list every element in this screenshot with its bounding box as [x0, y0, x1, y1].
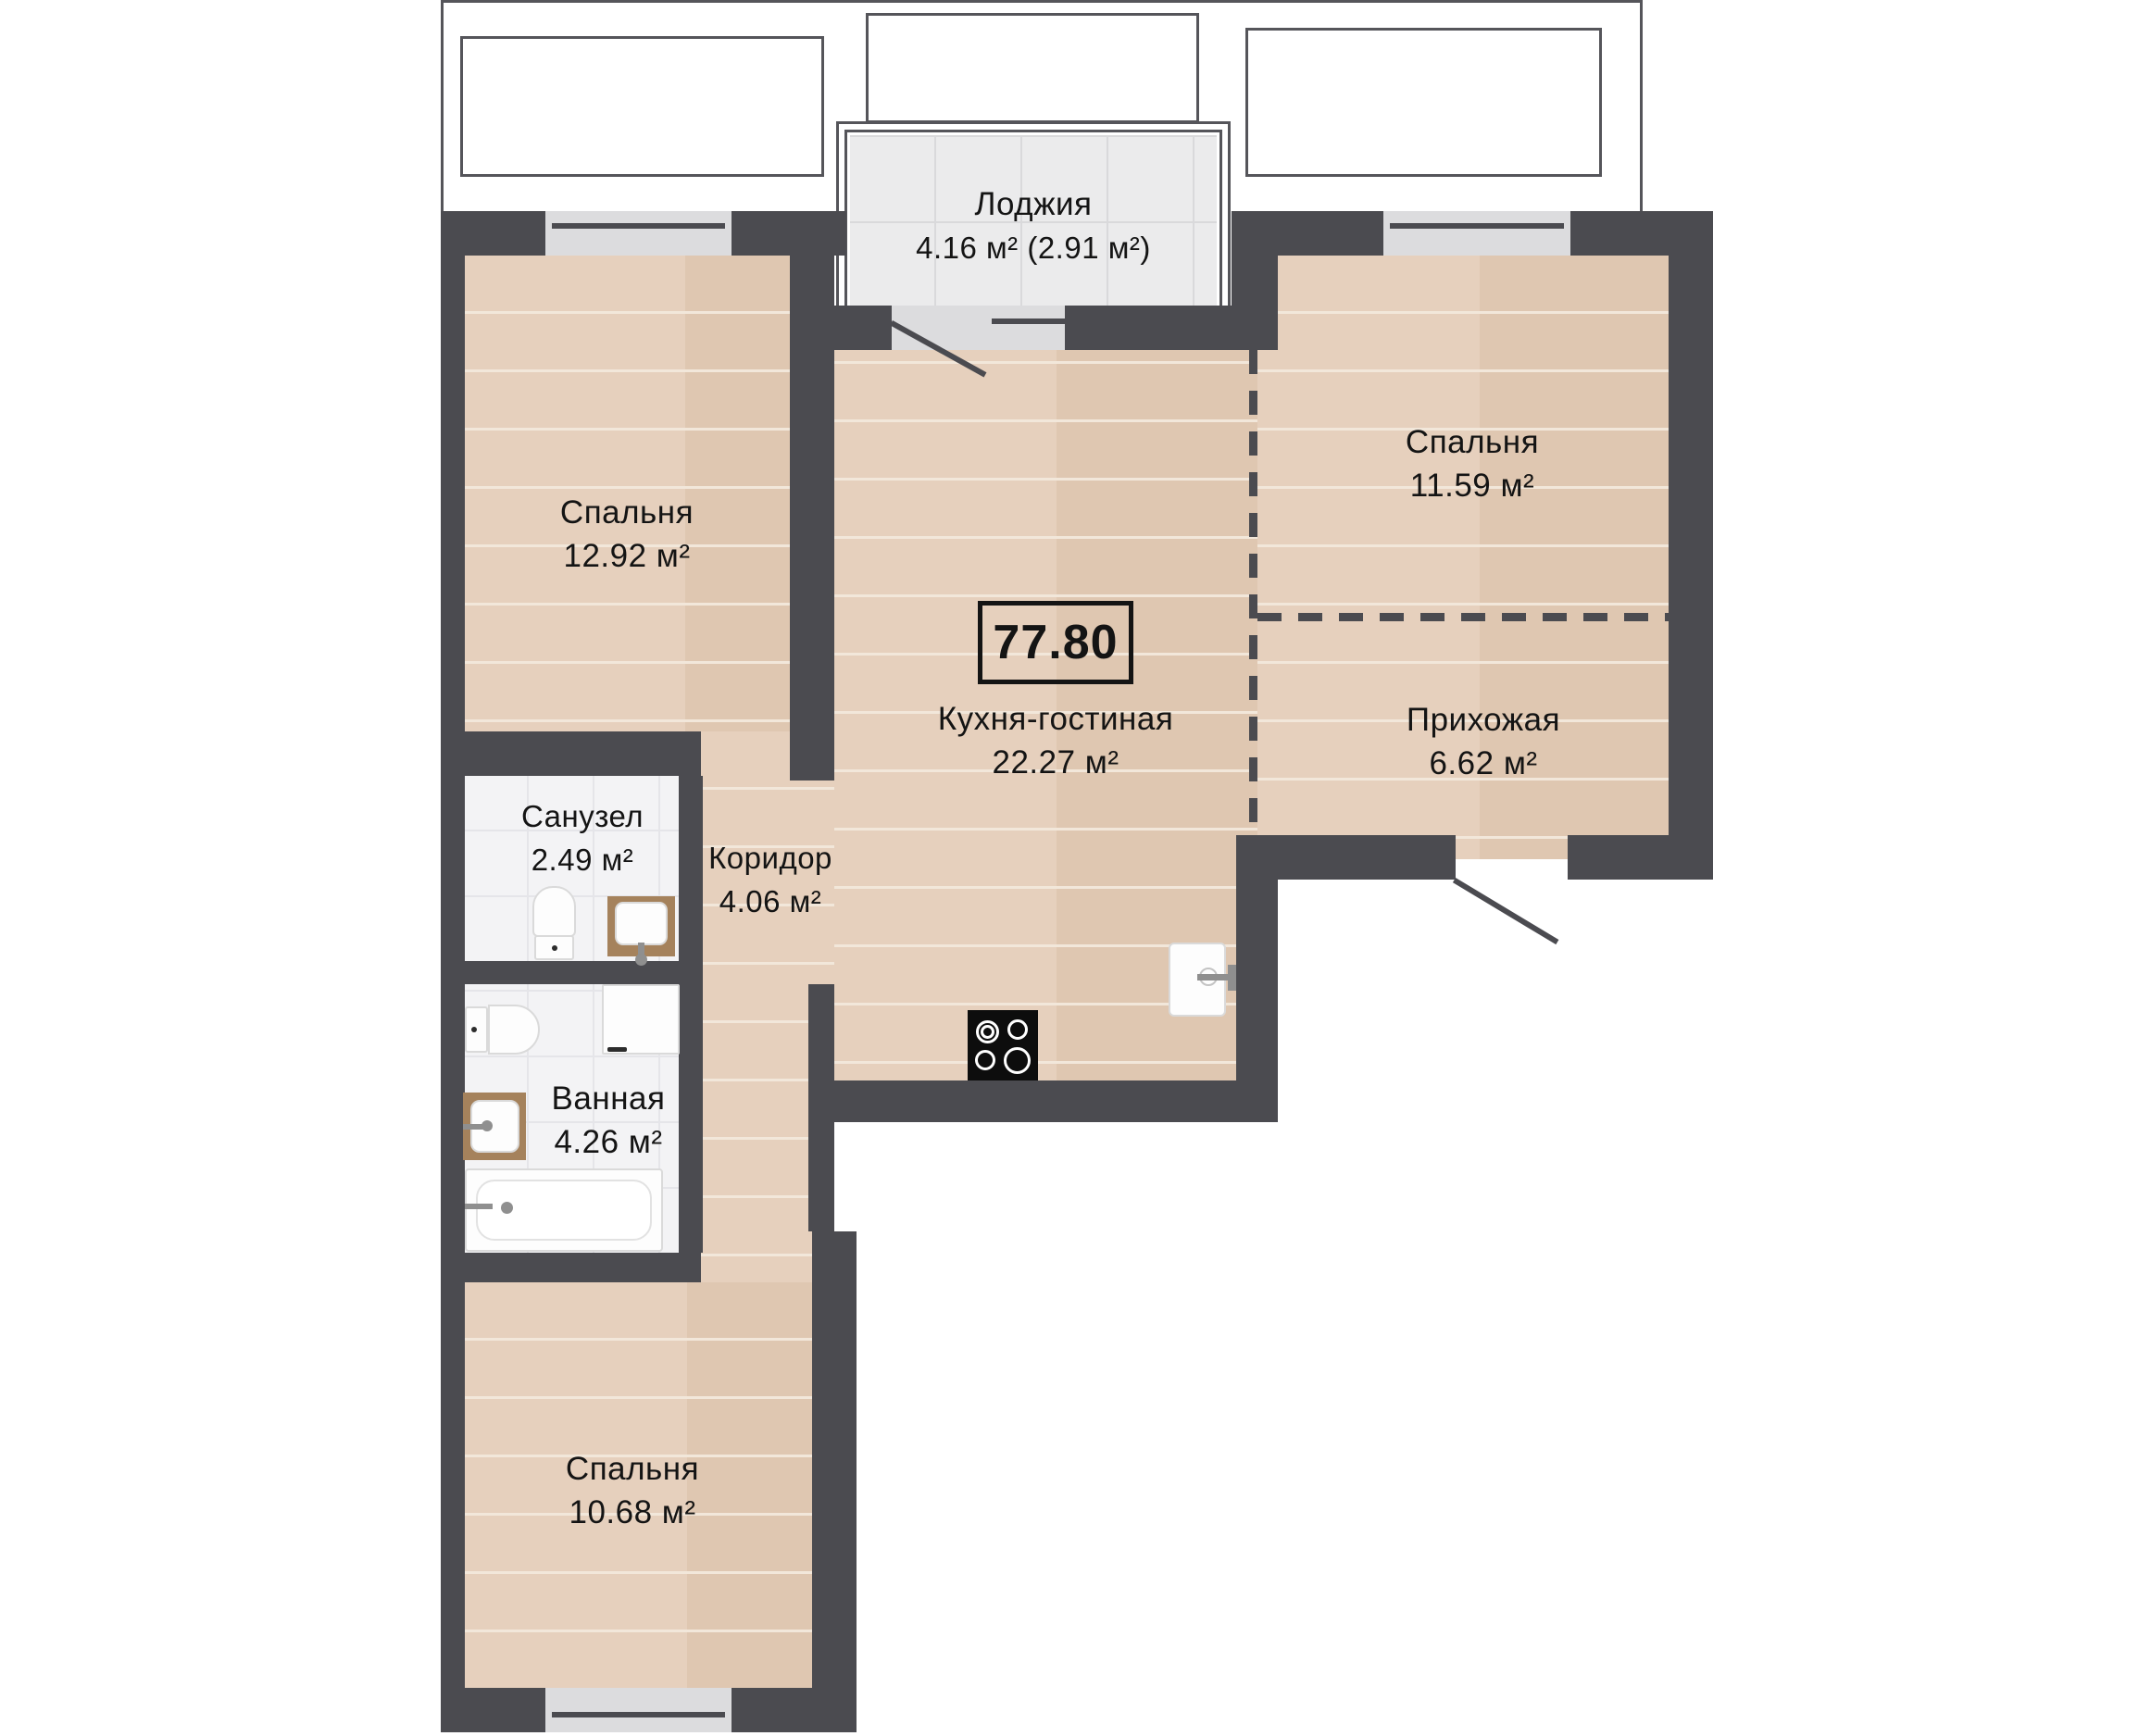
wall — [1568, 835, 1713, 880]
balcony-door-opening — [892, 306, 1065, 350]
bathroom-faucet-knob-icon — [481, 1120, 493, 1131]
wall — [790, 211, 834, 781]
room-label-bathroom: Ванная 4.26 м² — [552, 1077, 666, 1164]
room-name: Санузел — [521, 794, 644, 838]
outer-contour-right-line — [1640, 0, 1643, 211]
room-name: Кухня-гостиная — [938, 697, 1174, 741]
room-name: Ванная — [552, 1077, 666, 1120]
room-area: 2.49 м² — [521, 838, 644, 881]
room-label-hallway: Прихожая 6.62 м² — [1407, 698, 1560, 785]
window-glass-line — [552, 1712, 725, 1717]
wall — [808, 984, 834, 1231]
wall — [463, 961, 681, 984]
room-label-bedroom-bottom: Спальня 10.68 м² — [566, 1447, 699, 1534]
adjacent-balcony-outline-middle — [866, 13, 1199, 123]
window-glass-line — [552, 223, 725, 229]
floor-plan: Лоджия 4.16 м² (2.91 м²) Спальня 12.92 м… — [0, 0, 2151, 1736]
room-area: 11.59 м² — [1406, 464, 1539, 507]
room-area: 22.27 м² — [938, 741, 1174, 784]
room-name: Прихожая — [1407, 698, 1560, 742]
stove-icon — [968, 1010, 1038, 1080]
room-label-bedroom-top-right: Спальня 11.59 м² — [1406, 420, 1539, 507]
room-area: 4.06 м² — [708, 880, 832, 923]
room-label-wc: Санузел 2.49 м² — [521, 794, 644, 881]
room-area: 6.62 м² — [1407, 742, 1560, 785]
adjacent-balcony-outline-right — [1245, 28, 1602, 177]
dashed-partition-horizontal — [1257, 613, 1669, 621]
wall — [441, 211, 465, 1732]
toilet-button-icon — [552, 945, 557, 951]
room-name: Коридор — [708, 836, 832, 880]
window — [545, 1688, 732, 1732]
wall — [790, 306, 892, 350]
balcony-window-glass-line — [992, 318, 1065, 324]
outer-contour-left-line — [441, 0, 444, 211]
dashed-partition-vertical — [1249, 350, 1257, 835]
bathroom-toilet-button-icon — [471, 1027, 477, 1032]
room-name: Спальня — [566, 1447, 699, 1491]
wall — [679, 776, 703, 1253]
room-label-corridor: Коридор 4.06 м² — [708, 836, 832, 923]
room-name: Спальня — [1406, 420, 1539, 464]
wall — [1236, 835, 1456, 880]
wall — [1232, 211, 1385, 256]
bathtub-drain-icon — [501, 1202, 513, 1214]
kitchen-faucet-wall-mount-icon — [1228, 965, 1236, 991]
wc-faucet-knob-icon — [635, 954, 647, 966]
wall — [441, 1253, 701, 1282]
room-label-bedroom-top-left: Спальня 12.92 м² — [560, 491, 694, 578]
loggia-name: Лоджия — [916, 182, 1151, 226]
room-area: 12.92 м² — [560, 534, 694, 578]
wall — [812, 1231, 857, 1732]
room-area: 4.26 м² — [552, 1120, 666, 1164]
window — [545, 211, 732, 256]
window — [1383, 211, 1570, 256]
total-area-badge: 77.80 — [978, 601, 1133, 684]
adjacent-balcony-outline-left — [460, 36, 824, 177]
room-name: Спальня — [560, 491, 694, 534]
wall — [463, 731, 701, 776]
outer-contour-top-line — [441, 0, 1643, 3]
window-glass-line — [1390, 223, 1564, 229]
loggia-label: Лоджия 4.16 м² (2.91 м²) — [916, 182, 1151, 269]
toilet-icon — [532, 886, 576, 937]
wall — [1669, 211, 1713, 880]
washing-machine-icon — [602, 984, 680, 1055]
bathroom-toilet-icon — [488, 1005, 540, 1055]
bathtub-faucet-icon — [465, 1204, 493, 1209]
washing-machine-handle-icon — [607, 1047, 627, 1052]
wall — [834, 1080, 1257, 1122]
total-area-value: 77.80 — [993, 615, 1118, 670]
room-area: 10.68 м² — [566, 1491, 699, 1534]
loggia-area: 4.16 м² (2.91 м²) — [916, 226, 1151, 269]
entrance-door-swing — [1453, 878, 1559, 944]
wc-sink-basin-icon — [615, 902, 668, 945]
wall — [1232, 256, 1278, 350]
room-label-kitchen-living: Кухня-гостиная 22.27 м² — [938, 697, 1174, 784]
